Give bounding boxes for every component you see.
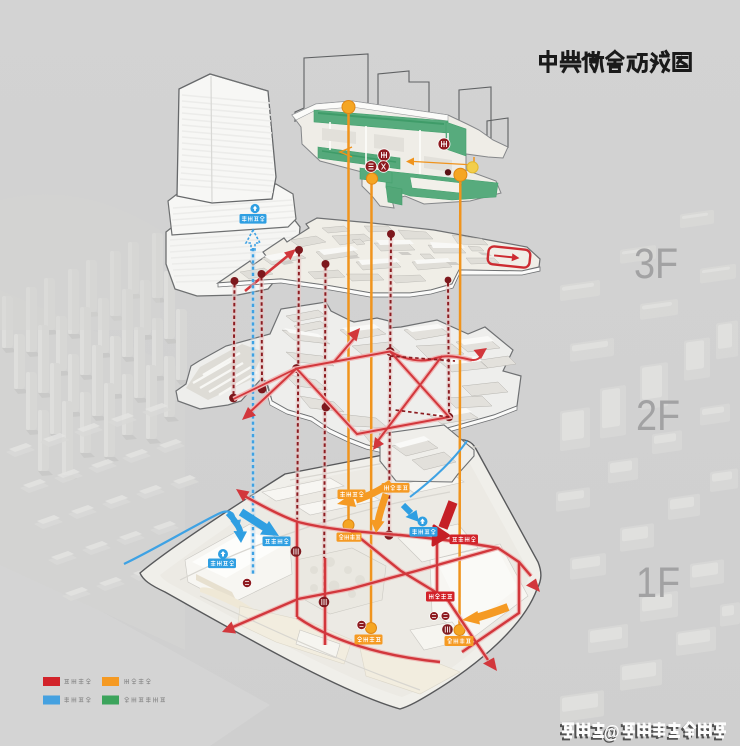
svg-text:2F: 2F [636,391,680,440]
svg-text:1F: 1F [636,558,680,607]
svg-text:3F: 3F [634,239,678,288]
svg-text:@: @ [604,721,620,742]
